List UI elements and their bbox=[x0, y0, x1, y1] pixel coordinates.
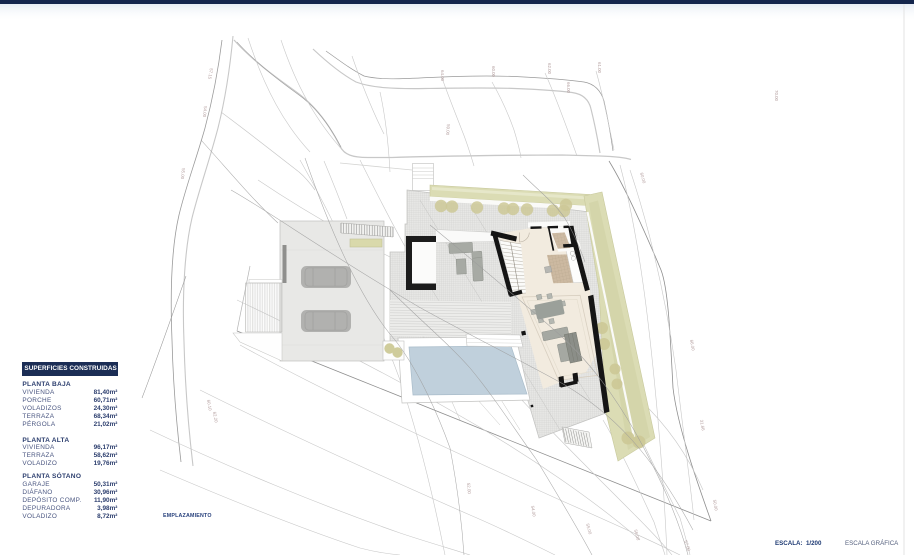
svg-text:70.00: 70.00 bbox=[774, 90, 779, 102]
svg-text:60.00: 60.00 bbox=[491, 66, 496, 78]
svg-text:64.00: 64.00 bbox=[440, 70, 445, 82]
svg-text:66.00: 66.00 bbox=[566, 82, 571, 94]
svg-text:52.00: 52.00 bbox=[466, 483, 472, 495]
svg-text:61.00: 61.00 bbox=[597, 62, 602, 74]
svg-text:62.00: 62.00 bbox=[547, 63, 552, 75]
svg-text:59.00: 59.00 bbox=[445, 124, 451, 136]
